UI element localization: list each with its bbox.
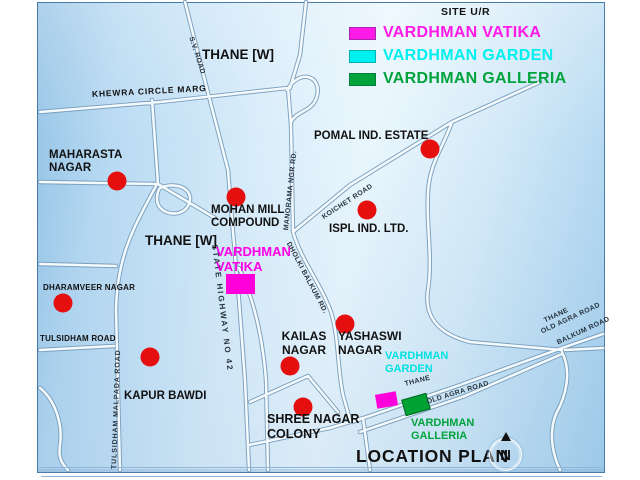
compass-n-label: N bbox=[500, 447, 511, 464]
marker-kailas-nagar bbox=[281, 357, 300, 376]
legend-item-galleria: VARDHMAN GALLERIA bbox=[349, 70, 566, 88]
label-ispl-ind-ltd: ISPL IND. LTD. bbox=[329, 223, 408, 236]
label-thane-west-mid: THANE [W] bbox=[145, 233, 217, 249]
garden-swatch bbox=[349, 50, 376, 63]
label-pomal-ind-estate: POMAL IND. ESTATE bbox=[314, 130, 428, 143]
location-plan-page: SITE U/R VARDHMAN VATIKA VARDHMAN GARDEN… bbox=[0, 0, 640, 480]
compass: N bbox=[489, 438, 522, 471]
marker-dharamveer-nagar bbox=[54, 294, 73, 313]
label-dharamveer-nagar: DHARAMVEER NAGAR bbox=[43, 283, 135, 292]
label-vardhman-garden: VARDHMAN GARDEN bbox=[385, 350, 448, 376]
label-kapur-bawdi: KAPUR BAWDI bbox=[124, 390, 206, 403]
marker-ispl-ind-ltd bbox=[358, 201, 377, 220]
map-bottom-lines bbox=[39, 468, 602, 477]
label-mohan-mill-compound: MOHAN MILL COMPOUND bbox=[211, 204, 284, 231]
legend-label-galleria: VARDHMAN GALLERIA bbox=[383, 70, 566, 88]
marker-kapur-bawdi bbox=[141, 348, 160, 367]
galleria-swatch bbox=[349, 73, 376, 86]
label-shree-nagar-colony: SHREE NAGAR COLONY bbox=[267, 412, 359, 441]
vatika-site-rect bbox=[226, 274, 255, 294]
vatika-swatch bbox=[349, 27, 376, 40]
label-maharasta-nagar: MAHARASTA NAGAR bbox=[49, 149, 122, 176]
site-ref-label: SITE U/R bbox=[441, 6, 490, 18]
legend-label-garden: VARDHMAN GARDEN bbox=[383, 47, 553, 65]
legend-item-garden: VARDHMAN GARDEN bbox=[349, 47, 553, 65]
legend-label-vatika: VARDHMAN VATIKA bbox=[383, 24, 541, 42]
label-vardhman-vatika: VARDHMAN VATIKA bbox=[216, 244, 291, 274]
label-kailas-nagar: KAILAS NAGAR bbox=[266, 330, 342, 358]
legend-item-vatika: VARDHMAN VATIKA bbox=[349, 24, 541, 42]
north-arrow-icon bbox=[501, 432, 511, 441]
label-thane-west-top: THANE [W] bbox=[202, 47, 274, 63]
page-title: LOCATION PLAN bbox=[356, 446, 509, 466]
label-vardhman-galleria: VARDHMAN GALLERIA bbox=[411, 417, 474, 443]
label-tulsidham-road: TULSIDHAM ROAD bbox=[40, 334, 116, 343]
